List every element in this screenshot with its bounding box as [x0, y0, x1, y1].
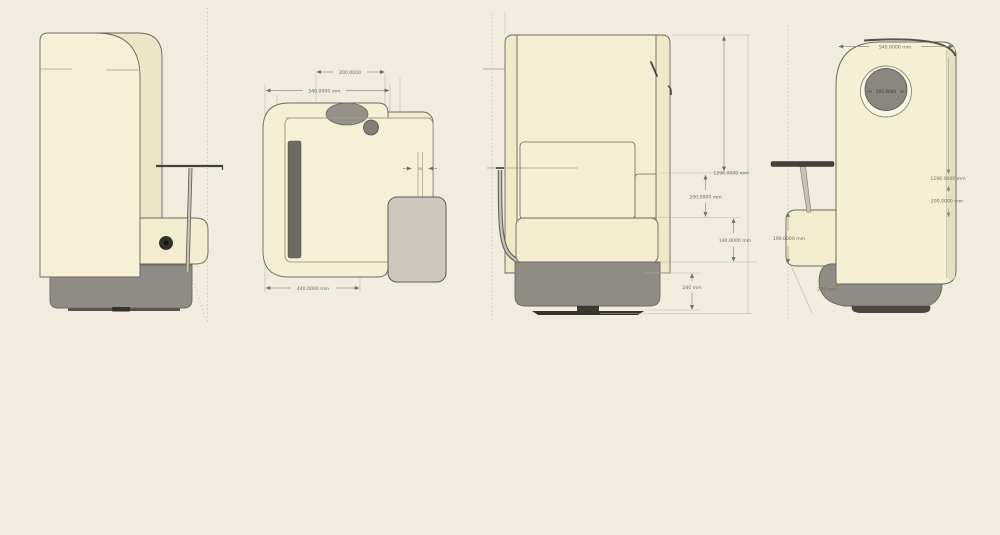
dimension-base-height: 240 mm: [682, 274, 702, 310]
pedestal: [577, 306, 599, 311]
dim-label: 540.0000 mm: [308, 88, 341, 94]
dim-label: 190.0000 mm: [773, 236, 806, 242]
table-top[interactable]: [771, 162, 834, 167]
dim-label: 190.0000 mm: [719, 238, 752, 244]
headrest-dome: [326, 103, 368, 125]
dim-label: 200.0000 mm: [689, 195, 722, 201]
back-view[interactable]: 200.0000 540.0000 mm 190.0000 mm 240 mm …: [771, 25, 966, 322]
dimension-seat-height: 190.0000 mm: [719, 219, 752, 262]
base-foot: [112, 307, 130, 312]
base-plate: [532, 311, 644, 315]
knob-center: [164, 241, 169, 246]
dim-label: 240 mm: [817, 287, 837, 293]
dim-label: 200.0000: [339, 70, 361, 76]
front-base: [515, 262, 660, 306]
dimension-shell-width: 540.0000 mm: [266, 88, 389, 94]
dimension-backrest-height: 200.0000 mm: [689, 175, 722, 217]
dim-label: 1296.0000 mm: [713, 170, 749, 176]
cup-recess: [364, 120, 379, 135]
dim-label: 440.0000 mm: [297, 286, 330, 292]
dim-label: 540.0000 mm: [879, 44, 912, 50]
backrest-cushion-strip: [288, 141, 301, 258]
dimension-shell-depth: 440.0000 mm: [266, 286, 359, 292]
dim-label: 1296.0000 mm: [930, 176, 966, 182]
side-front-shell: [40, 33, 140, 277]
orthographic-drawing: 200.0000 540.0000 mm 30 440.00: [0, 0, 1000, 535]
dim-label: 30: [418, 167, 423, 171]
top-table[interactable]: [388, 197, 446, 282]
dimension-overall-height: 1296.0000 mm: [713, 36, 749, 176]
armrest-front: [635, 174, 656, 218]
front-view[interactable]: 1296.0000 mm 200.0000 mm 190.0000 mm 240…: [483, 12, 757, 322]
dim-label: 200.0000 mm: [931, 199, 964, 205]
side-view[interactable]: [40, 8, 223, 322]
dim-label: 240 mm: [682, 285, 702, 291]
table-leg: [800, 167, 811, 213]
top-view[interactable]: 200.0000 540.0000 mm 30 440.00: [263, 70, 446, 292]
drawing-canvas: 200.0000 540.0000 mm 30 440.00: [0, 0, 1000, 535]
left-wall: [505, 35, 517, 273]
base-plate: [852, 306, 931, 313]
seat-cushion: [516, 218, 658, 263]
dim-label: 200.0000: [876, 89, 896, 94]
side-seat-module: [140, 218, 208, 264]
seat-back-panel: [520, 142, 635, 219]
dimension-headrest-width: 200.0000: [317, 70, 385, 76]
dimension-base-height: 240 mm: [817, 287, 837, 293]
construction-line: [790, 263, 812, 313]
